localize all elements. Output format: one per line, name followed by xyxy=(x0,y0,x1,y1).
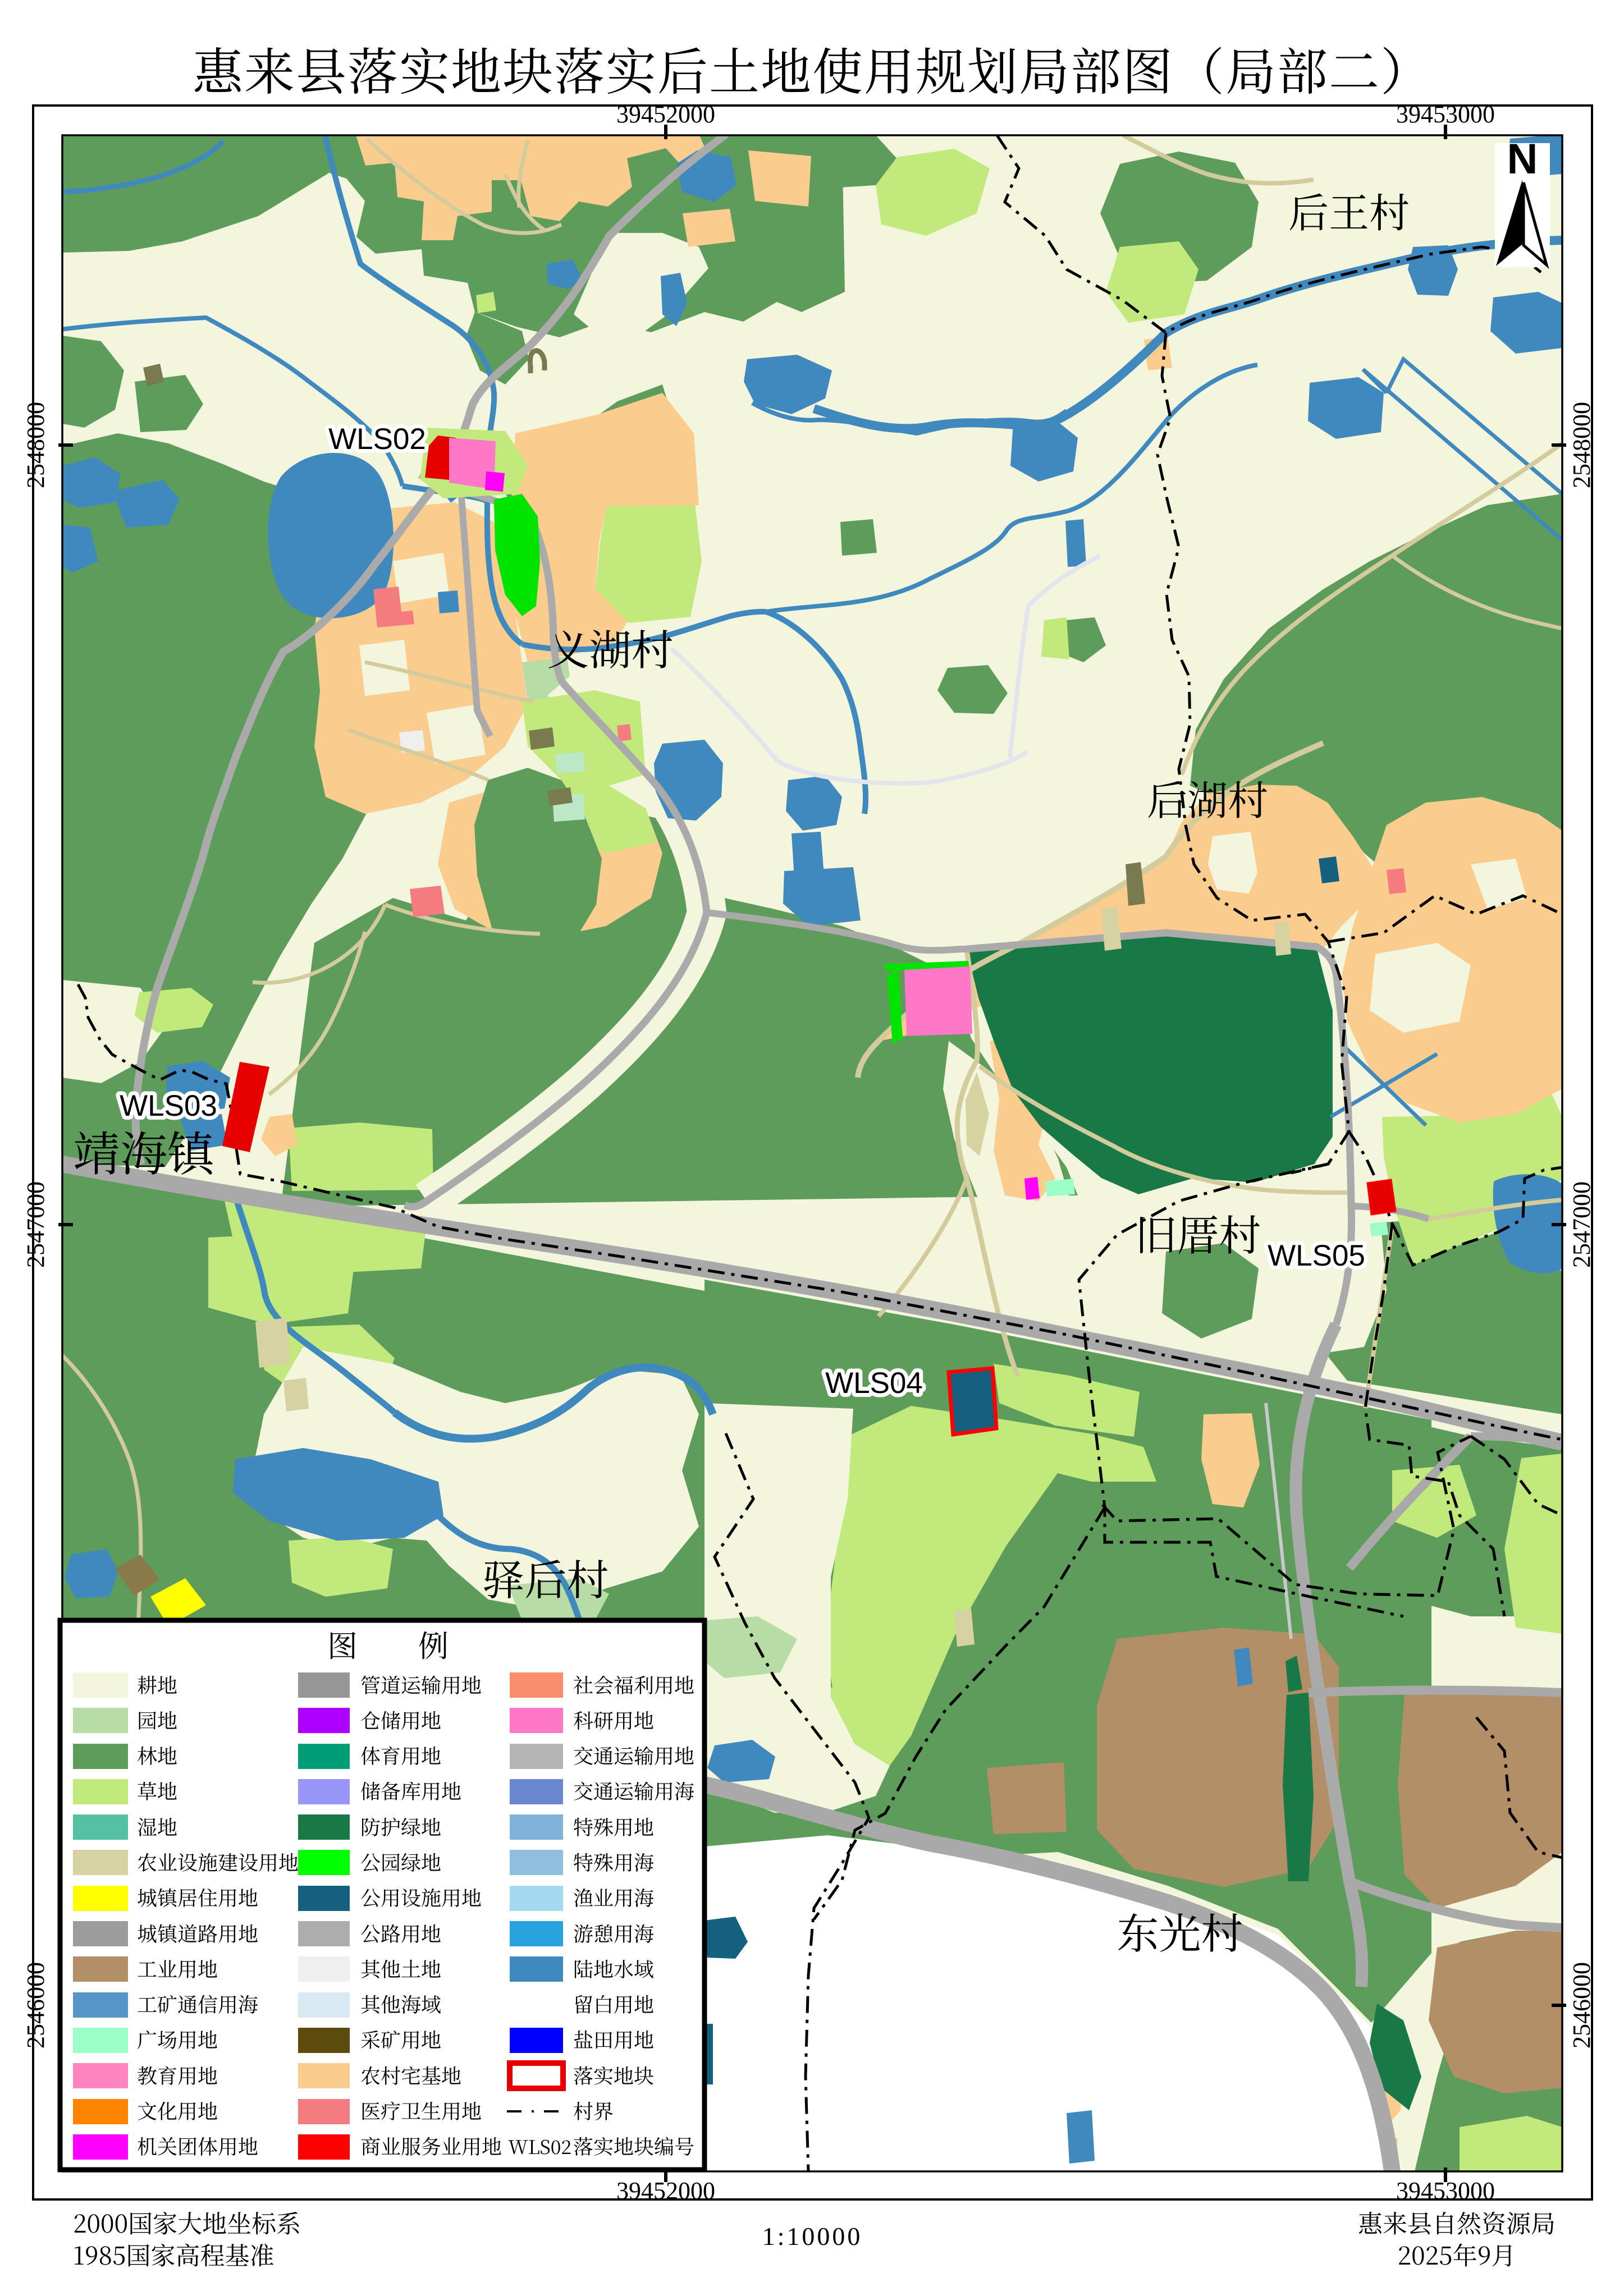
svg-text:交通运输用地: 交通运输用地 xyxy=(573,1741,694,1770)
svg-text:林地: 林地 xyxy=(137,1741,177,1770)
svg-text:陆地水域: 陆地水域 xyxy=(573,1954,654,1983)
svg-text:WLS03: WLS03 xyxy=(120,1089,217,1122)
svg-text:体育用地: 体育用地 xyxy=(360,1741,441,1770)
svg-text:旧厝村: 旧厝村 xyxy=(1134,1203,1261,1263)
svg-text:村界: 村界 xyxy=(573,2096,614,2125)
svg-text:39453000: 39453000 xyxy=(1396,100,1495,128)
svg-text:2548000: 2548000 xyxy=(1568,402,1595,488)
svg-text:耕地: 耕地 xyxy=(137,1670,177,1699)
svg-text:防护绿地: 防护绿地 xyxy=(360,1812,441,1841)
svg-text:草地: 草地 xyxy=(137,1776,177,1805)
svg-text:2025年9月: 2025年9月 xyxy=(1398,2236,1516,2272)
svg-text:城镇道路用地: 城镇道路用地 xyxy=(137,1919,258,1947)
svg-text:WLS02: WLS02 xyxy=(508,2132,571,2160)
svg-text:工矿通信用海: 工矿通信用海 xyxy=(137,1990,258,2018)
svg-text:管道运输用地: 管道运输用地 xyxy=(360,1670,482,1699)
svg-text:园地: 园地 xyxy=(137,1706,177,1734)
svg-text:公用设施用地: 公用设施用地 xyxy=(360,1883,482,1912)
svg-text:城镇居住用地: 城镇居住用地 xyxy=(137,1883,258,1912)
svg-text:图: 图 xyxy=(327,1623,358,1666)
svg-text:湿地: 湿地 xyxy=(137,1812,177,1841)
svg-text:落实地块编号: 落实地块编号 xyxy=(573,2132,694,2160)
svg-text:1985国家高程基准: 1985国家高程基准 xyxy=(73,2236,275,2272)
svg-text:交通运输用海: 交通运输用海 xyxy=(573,1776,694,1805)
svg-text:义湖村: 义湖村 xyxy=(547,617,673,677)
svg-text:后湖村: 后湖村 xyxy=(1147,768,1268,827)
svg-text:其他海域: 其他海域 xyxy=(360,1990,441,2018)
svg-text:农村宅基地: 农村宅基地 xyxy=(360,2061,461,2089)
svg-text:例: 例 xyxy=(418,1623,449,1666)
svg-text:文化用地: 文化用地 xyxy=(137,2096,218,2125)
svg-text:农业设施建设用地: 农业设施建设用地 xyxy=(137,1848,299,1876)
svg-text:2546000: 2546000 xyxy=(22,1962,49,2048)
svg-text:2547000: 2547000 xyxy=(1568,1181,1595,1268)
svg-text:特殊用地: 特殊用地 xyxy=(573,1812,654,1841)
svg-text:东光村: 东光村 xyxy=(1117,1901,1243,1961)
svg-text:2546000: 2546000 xyxy=(1568,1962,1595,2048)
svg-text:机关团体用地: 机关团体用地 xyxy=(137,2132,258,2160)
svg-text:其他土地: 其他土地 xyxy=(360,1954,441,1983)
svg-text:仓储用地: 仓储用地 xyxy=(360,1706,441,1734)
svg-text:2548000: 2548000 xyxy=(22,402,49,488)
svg-text:工业用地: 工业用地 xyxy=(137,1954,218,1983)
svg-text:医疗卫生用地: 医疗卫生用地 xyxy=(360,2096,482,2125)
svg-text:惠来县自然资源局: 惠来县自然资源局 xyxy=(1358,2204,1556,2240)
svg-text:盐田用地: 盐田用地 xyxy=(573,2025,654,2054)
svg-text:公路用地: 公路用地 xyxy=(360,1919,441,1947)
svg-text:科研用地: 科研用地 xyxy=(573,1706,654,1734)
svg-text:渔业用海: 渔业用海 xyxy=(573,1883,654,1912)
svg-text:特殊用海: 特殊用海 xyxy=(573,1848,654,1876)
svg-text:WLS05: WLS05 xyxy=(1268,1239,1365,1272)
svg-text:2000国家大地坐标系: 2000国家大地坐标系 xyxy=(73,2204,301,2240)
svg-text:39453000: 39453000 xyxy=(1396,2177,1495,2205)
svg-text:1:10000: 1:10000 xyxy=(762,2222,863,2251)
svg-text:后王村: 后王村 xyxy=(1288,181,1410,239)
svg-text:39452000: 39452000 xyxy=(616,2177,715,2205)
svg-text:留白用地: 留白用地 xyxy=(573,1990,654,2018)
svg-text:落实地块: 落实地块 xyxy=(573,2061,654,2089)
svg-text:游憩用海: 游憩用海 xyxy=(573,1919,654,1947)
svg-text:驿后村: 驿后村 xyxy=(482,1547,609,1607)
svg-text:储备库用地: 储备库用地 xyxy=(360,1776,461,1805)
svg-text:WLS04: WLS04 xyxy=(825,1367,923,1400)
svg-text:采矿用地: 采矿用地 xyxy=(360,2025,441,2054)
svg-text:2547000: 2547000 xyxy=(22,1181,49,1268)
svg-text:惠来县落实地块落实后土地使用规划局部图（局部二）: 惠来县落实地块落实后土地使用规划局部图（局部二） xyxy=(193,31,1432,104)
svg-text:靖海镇: 靖海镇 xyxy=(73,1117,217,1185)
svg-text:广场用地: 广场用地 xyxy=(137,2025,218,2054)
svg-text:WLS02: WLS02 xyxy=(328,423,426,456)
svg-text:商业服务业用地: 商业服务业用地 xyxy=(360,2132,502,2160)
svg-text:39452000: 39452000 xyxy=(616,100,715,128)
svg-text:社会福利用地: 社会福利用地 xyxy=(573,1670,694,1699)
svg-text:公园绿地: 公园绿地 xyxy=(360,1848,441,1876)
svg-text:教育用地: 教育用地 xyxy=(137,2061,218,2089)
svg-text:N: N xyxy=(1507,135,1538,183)
